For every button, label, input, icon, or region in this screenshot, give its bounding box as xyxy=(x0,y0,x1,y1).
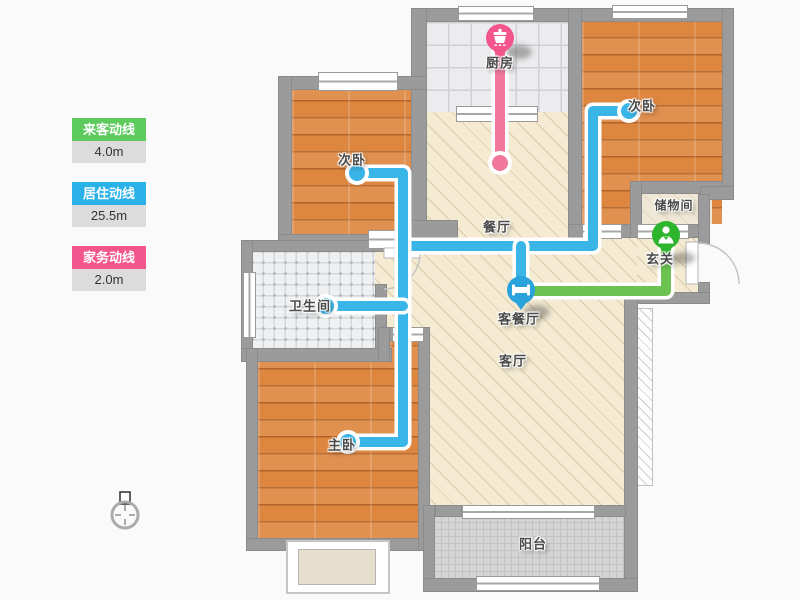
room-label-dining: 餐厅 xyxy=(483,217,511,236)
room-label-bedroom-right: 次卧 xyxy=(628,96,656,115)
compass-icon xyxy=(112,492,138,528)
legend-item-living: 居住动线 25.5m xyxy=(72,182,146,227)
legend-housework-value: 2.0m xyxy=(72,269,146,291)
legend-guest-label: 来客动线 xyxy=(72,118,146,141)
route-legend: 来客动线 4.0m 居住动线 25.5m 家务动线 2.0m xyxy=(72,118,146,310)
legend-item-housework: 家务动线 2.0m xyxy=(72,246,146,291)
room-label-balcony: 阳台 xyxy=(519,534,547,553)
room-label-entry: 玄关 xyxy=(646,249,674,268)
entrance-door xyxy=(686,242,739,284)
living-dining-pin[interactable] xyxy=(507,276,535,310)
legend-living-label: 居住动线 xyxy=(72,182,146,205)
room-label-living-dining: 客餐厅 xyxy=(498,309,540,328)
floorplan-canvas: 厨房 次卧 次卧 餐厅 储物间 玄关 卫生间 客餐厅 客厅 主卧 阳台 来客动线… xyxy=(0,0,800,600)
room-label-kitchen: 厨房 xyxy=(486,53,514,72)
room-label-master: 主卧 xyxy=(328,435,356,454)
room-label-bathroom: 卫生间 xyxy=(289,296,331,315)
room-label-bedroom-left: 次卧 xyxy=(338,150,366,169)
pin-shadow xyxy=(671,252,695,264)
legend-housework-label: 家务动线 xyxy=(72,246,146,269)
room-label-living: 客厅 xyxy=(499,351,527,370)
legend-living-value: 25.5m xyxy=(72,205,146,227)
room-label-storage: 储物间 xyxy=(654,197,693,214)
legend-guest-value: 4.0m xyxy=(72,141,146,163)
legend-item-guest: 来客动线 4.0m xyxy=(72,118,146,163)
